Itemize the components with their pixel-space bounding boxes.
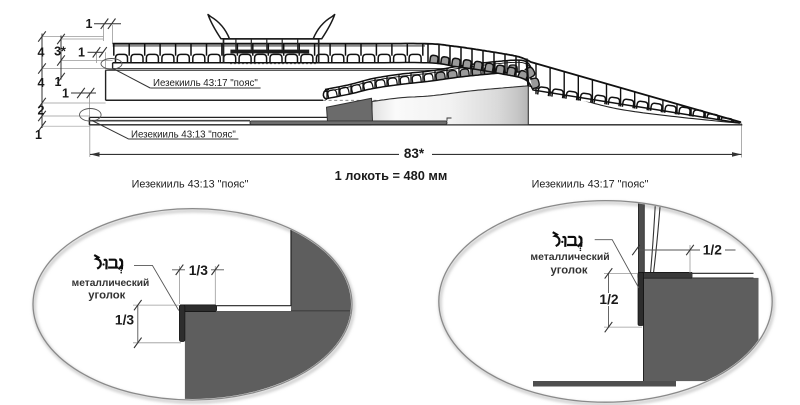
svg-text:83*: 83* [404,146,425,161]
svg-text:1/3: 1/3 [189,263,209,278]
svg-text:1: 1 [55,75,62,89]
svg-text:Иезекииль 43:13 "пояс": Иезекииль 43:13 "пояс" [131,129,236,140]
svg-text:Иезекииль 43:13 "пояс": Иезекииль 43:13 "пояс" [132,178,249,190]
svg-text:1: 1 [86,17,93,31]
svg-text:Иезекииль 43:17 "пояс": Иезекииль 43:17 "пояс" [532,178,649,190]
svg-text:уголок: уголок [550,264,587,276]
svg-text:4: 4 [38,46,45,60]
svg-text:4: 4 [38,76,45,90]
svg-text:1: 1 [78,46,85,60]
svg-text:1: 1 [35,128,42,142]
svg-text:1/2: 1/2 [703,242,723,257]
svg-text:1/2: 1/2 [599,292,619,307]
svg-text:металлический: металлический [530,252,609,263]
svg-text:3*: 3* [54,44,66,58]
svg-text:уголок: уголок [88,289,125,301]
svg-text:1: 1 [62,86,69,100]
svg-text:1/3: 1/3 [115,313,135,328]
svg-text:2: 2 [38,103,45,117]
svg-text:металлический: металлический [72,278,150,289]
svg-text:Иезекииль 43:17 "пояс": Иезекииль 43:17 "пояс" [153,78,258,89]
svg-text:1 локоть = 480 мм: 1 локоть = 480 мм [335,168,448,183]
